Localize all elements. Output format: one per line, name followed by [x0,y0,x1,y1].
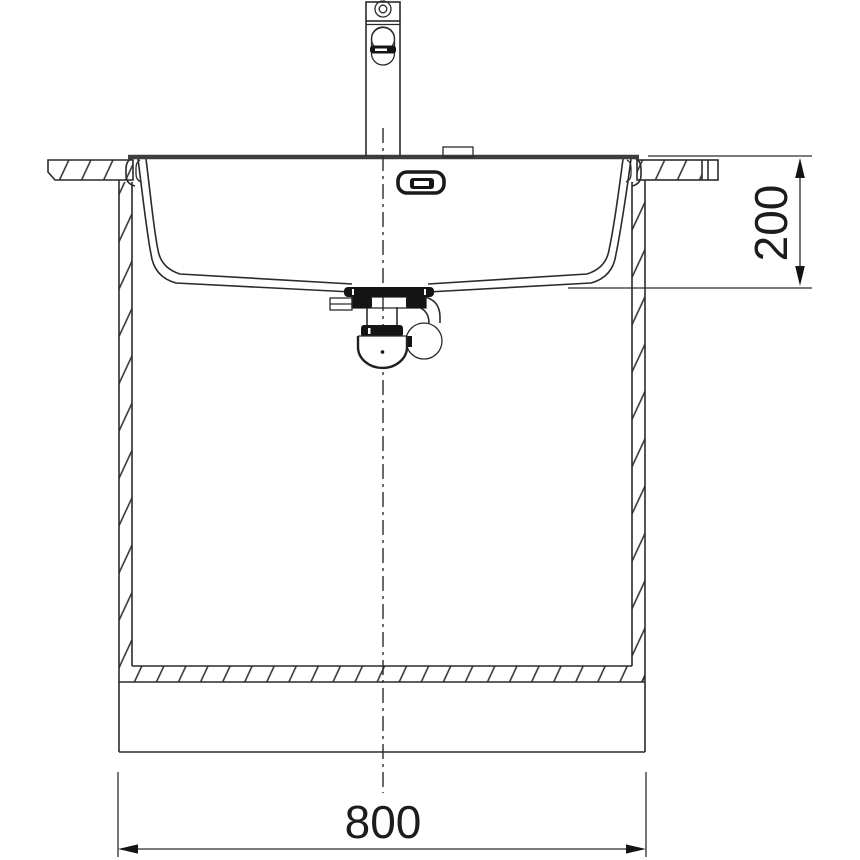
arrowhead-left-icon [118,844,138,853]
worktop-left-section [48,160,133,180]
drain-flange [344,287,434,297]
technical-drawing: 200 800 [0,0,860,860]
sink-cross-section-svg: 200 800 [0,0,860,860]
tap-cap-ring [375,1,391,17]
arrowhead-up-icon [795,158,805,178]
arrowhead-right-icon [626,844,646,853]
tap-cap-dot [379,5,387,13]
arrowhead-down-icon [795,266,805,286]
dimension-width-value: 800 [345,796,422,848]
trap-nut [361,325,403,337]
dimension-depth-value: 200 [745,185,797,262]
cabinet-carcass [119,180,645,752]
overflow-slot [398,172,444,193]
dimension-width: 800 [118,772,646,857]
worktop-right-section [637,160,718,180]
siphon-drain-assembly [330,287,442,368]
